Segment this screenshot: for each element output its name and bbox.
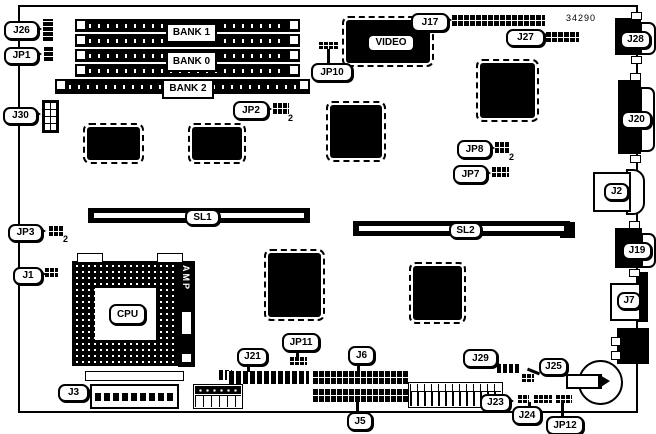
callout-jp3: JP3 <box>8 224 43 242</box>
cpu-socket-tab <box>77 253 103 263</box>
j27-header <box>545 32 579 42</box>
jp7-jumper <box>491 167 509 177</box>
j28-mount-tab <box>631 56 642 64</box>
amp-slot-key2 <box>182 354 191 362</box>
j2-label: J2 <box>604 183 629 201</box>
callout-tail <box>356 402 359 412</box>
battery-clip <box>566 374 602 389</box>
callout-jp8: JP8 <box>457 140 492 159</box>
jp8-pin2-label: 2 <box>509 152 514 162</box>
jp8-jumper <box>494 142 510 153</box>
j21-header <box>227 371 309 384</box>
jp2-pin2-label: 2 <box>288 113 293 123</box>
callout-jp11: JP11 <box>282 333 320 352</box>
terminal-block-top <box>410 384 501 392</box>
callout-j27: J27 <box>506 29 545 47</box>
bank2-label: BANK 2 <box>162 79 214 99</box>
cpu-bottom-bar <box>85 371 184 381</box>
j19-label: J19 <box>622 242 652 260</box>
j3-connector <box>90 384 179 409</box>
callout-j21: J21 <box>237 348 268 366</box>
video-chip-label: VIDEO <box>367 34 415 52</box>
callout-j17: J17 <box>411 13 449 32</box>
callout-j3: J3 <box>58 384 89 402</box>
j5-header <box>312 389 408 402</box>
j6-header <box>312 371 408 384</box>
chip-2 <box>192 127 242 160</box>
power-connector-pins <box>195 386 241 394</box>
callout-tail <box>327 49 330 63</box>
jp11-jumper <box>289 357 307 365</box>
callout-j30: J30 <box>3 107 38 125</box>
sl1-label: SL1 <box>185 209 220 226</box>
callout-j23: J23 <box>480 394 511 412</box>
callout-tail <box>561 403 564 417</box>
power-connector-slots <box>195 395 241 407</box>
j20-mount-tab <box>630 155 641 163</box>
j26-header <box>43 19 53 42</box>
j20-label: J20 <box>621 111 652 129</box>
chip-5 <box>268 253 321 317</box>
amp-label: AMP <box>181 265 190 307</box>
chip-1 <box>87 127 140 160</box>
power-socket-tab <box>611 351 621 360</box>
callout-j1: J1 <box>13 267 43 285</box>
jp1-header <box>44 47 53 62</box>
part-number: 34290 <box>566 13 596 23</box>
power-connector <box>193 384 243 409</box>
j19-mount-tab <box>629 269 640 277</box>
j3-pins <box>95 393 174 401</box>
callout-jp12: JP12 <box>546 416 584 434</box>
callout-j5: J5 <box>347 412 373 431</box>
j28-label: J28 <box>620 31 651 49</box>
chip-6 <box>413 266 462 320</box>
power-socket-tab <box>611 337 621 346</box>
motherboard-diagram: 34290 BANK 1 BANK 0 BANK 2 VIDEO J26 JP1… <box>0 0 656 434</box>
jp10-header <box>318 42 339 49</box>
bank0-label: BANK 0 <box>166 51 217 72</box>
amp-slot-key <box>182 312 191 334</box>
chip-4 <box>480 63 535 118</box>
callout-j26: J26 <box>4 21 39 40</box>
chip-3 <box>330 105 382 158</box>
j30-header <box>42 100 59 133</box>
callout-j24: J24 <box>512 406 542 425</box>
callout-jp2: JP2 <box>233 101 269 120</box>
callout-j6: J6 <box>348 346 375 365</box>
callout-jp7: JP7 <box>453 165 488 184</box>
bank1-label: BANK 1 <box>166 23 217 43</box>
j7-label: J7 <box>617 292 641 310</box>
jp2-jumper <box>272 103 289 114</box>
j19-mount-tab <box>629 221 640 229</box>
power-socket <box>617 328 649 364</box>
j25-jumper <box>521 374 534 382</box>
j17-header <box>451 15 545 26</box>
jp12-jumper <box>555 395 572 403</box>
callout-j29: J29 <box>463 349 498 368</box>
callout-jp10: JP10 <box>311 63 353 82</box>
callout-jp1: JP1 <box>4 47 39 65</box>
cpu-socket-tab <box>157 253 183 263</box>
sl2-label: SL2 <box>449 222 482 239</box>
j28-mount-tab <box>631 12 642 20</box>
jp3-pin2-label: 2 <box>63 234 68 244</box>
battery-clip-tip <box>598 374 610 389</box>
j1-jumper <box>44 268 58 277</box>
cpu-label: CPU <box>109 304 146 325</box>
jp3-jumper <box>48 226 63 236</box>
j20-mount-tab <box>630 73 641 81</box>
callout-j25: J25 <box>539 358 568 376</box>
j24-jumper <box>533 395 552 403</box>
